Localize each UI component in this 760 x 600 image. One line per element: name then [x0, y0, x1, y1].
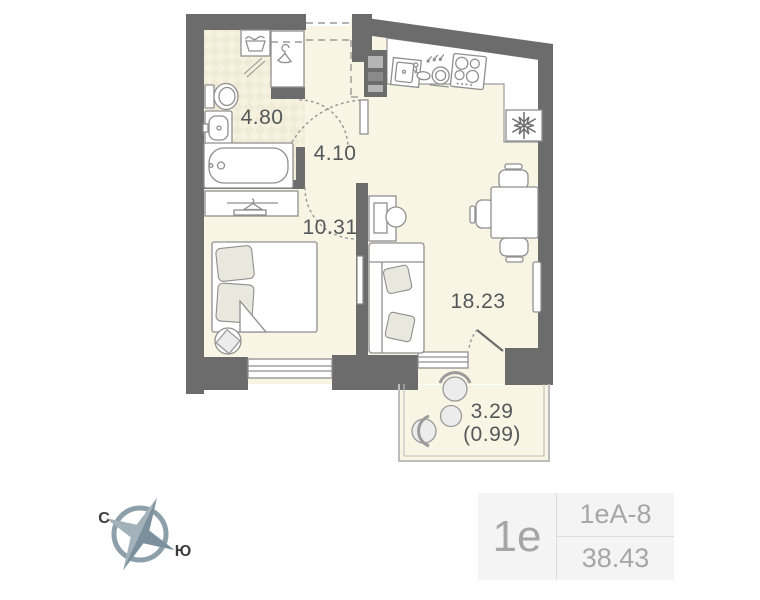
wall-below-closet: [271, 87, 305, 99]
total-area: 38.43: [557, 537, 674, 580]
fridge: [506, 110, 542, 141]
apartment-info-panel: 1е 1еА-8 38.43: [478, 493, 674, 580]
pouf: [215, 328, 241, 354]
wall-bottom-right-pier: [505, 348, 553, 385]
compass-rose: С Ю: [89, 482, 192, 587]
room-label-living: 18.23: [450, 290, 505, 313]
wardrobe: [205, 191, 298, 216]
washing-machine-icon: [241, 30, 270, 56]
pillow: [385, 312, 416, 343]
floor-plan-card: 4.80 4.10 10.31 18.23 3.29 (0.99) С Ю 1е…: [0, 0, 760, 600]
wall-left: [186, 14, 204, 394]
room-label-balcony: 3.29: [471, 400, 514, 423]
chair: [499, 170, 528, 189]
wall-bottom-left-pier: [186, 357, 248, 390]
compass-north-label: С: [98, 510, 110, 527]
wall-bottom-mid-pier: [332, 355, 418, 390]
room-label-hallway: 4.10: [314, 142, 357, 165]
radiator-panel: [533, 262, 541, 312]
living-window: [418, 352, 468, 368]
bathroom-sink: [203, 111, 232, 144]
compass-south-label: Ю: [175, 543, 192, 560]
wall-top: [186, 14, 306, 30]
balcony-table: [441, 406, 462, 427]
hob-icon: [450, 53, 486, 89]
bathtub: [204, 143, 293, 188]
bed: [212, 242, 317, 332]
tv-panel: [357, 256, 363, 304]
room-label-bathroom: 4.80: [241, 106, 284, 129]
chair: [500, 238, 528, 256]
entry-closet: [271, 31, 304, 87]
sofa: [369, 243, 424, 353]
balcony-chair: [443, 377, 467, 401]
hall-living-door-leaf: [360, 100, 368, 134]
apartment-type: 1е: [478, 493, 556, 580]
oven-column: [364, 50, 387, 97]
bedroom-window: [248, 359, 332, 378]
room-label-bedroom: 10.31: [302, 216, 357, 239]
chair: [386, 207, 406, 227]
balcony-chair: [412, 419, 436, 443]
pillow: [383, 265, 413, 295]
toilet: [205, 84, 238, 110]
wall-right: [538, 44, 553, 385]
layout-code: 1еА-8: [557, 493, 674, 536]
room-label-balcony-coefficient: (0.99): [463, 423, 521, 446]
dining-table: [491, 187, 538, 238]
pillow: [215, 245, 254, 282]
